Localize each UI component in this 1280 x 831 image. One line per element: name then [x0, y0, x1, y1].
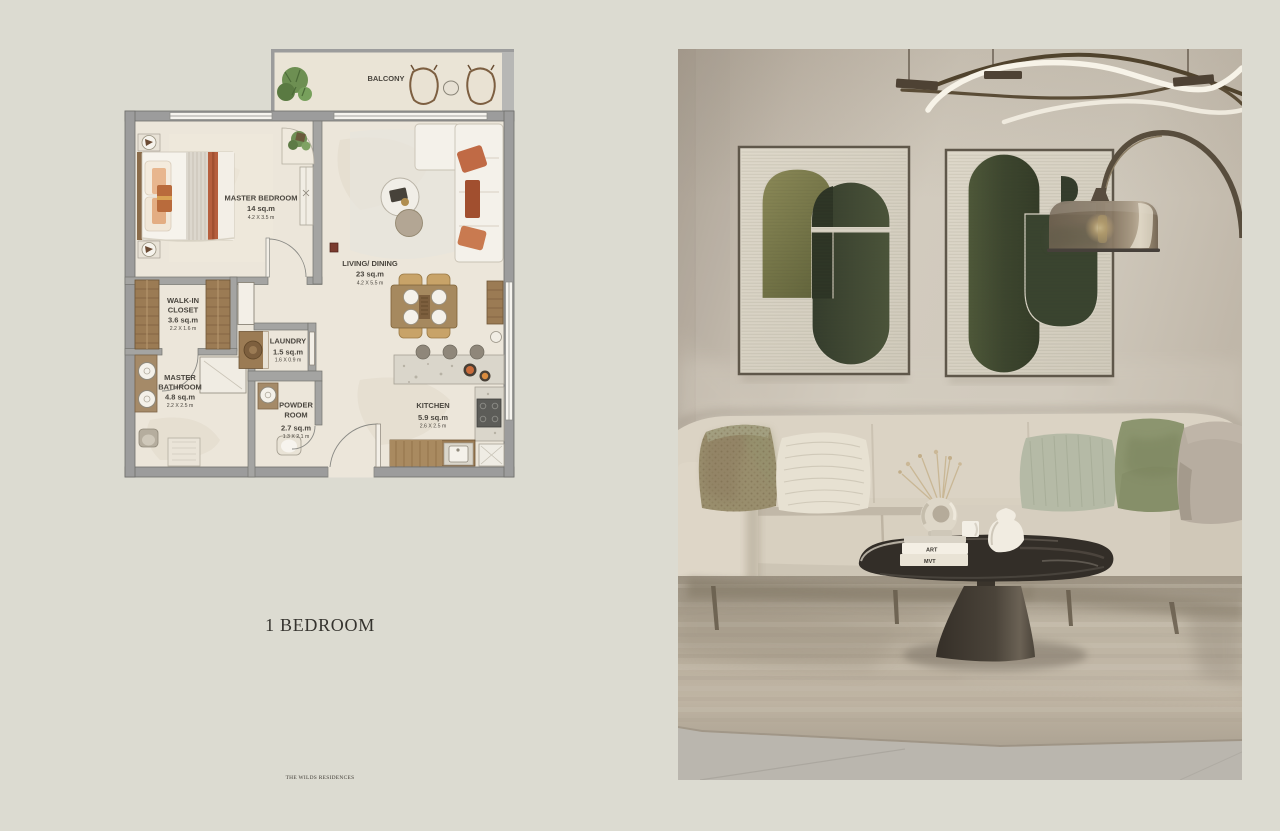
- svg-text:MVT: MVT: [924, 559, 936, 565]
- svg-text:3.6 sq.m: 3.6 sq.m: [168, 316, 198, 325]
- svg-text:LIVING/ DINING: LIVING/ DINING: [342, 259, 398, 268]
- svg-text:2.6 X 2.5 m: 2.6 X 2.5 m: [420, 424, 447, 430]
- svg-text:2.7 sq.m: 2.7 sq.m: [281, 424, 311, 433]
- svg-text:KITCHEN: KITCHEN: [416, 401, 449, 410]
- svg-text:4.2 X 5.5 m: 4.2 X 5.5 m: [357, 281, 384, 287]
- svg-text:2.2 X 2.5 m: 2.2 X 2.5 m: [167, 403, 194, 409]
- svg-text:5.9 sq.m: 5.9 sq.m: [418, 413, 448, 422]
- svg-text:23 sq.m: 23 sq.m: [356, 270, 384, 279]
- svg-text:LAUNDRY: LAUNDRY: [270, 337, 306, 346]
- svg-text:MASTER BEDROOM: MASTER BEDROOM: [225, 194, 298, 203]
- svg-text:ART: ART: [926, 548, 938, 554]
- svg-text:1.5 sq.m: 1.5 sq.m: [273, 348, 303, 357]
- svg-text:ROOM: ROOM: [284, 411, 307, 420]
- svg-text:THE WILDS RESIDENCES: THE WILDS RESIDENCES: [286, 775, 355, 781]
- svg-text:MASTER: MASTER: [164, 373, 196, 382]
- svg-text:14 sq.m: 14 sq.m: [247, 204, 275, 213]
- svg-text:4.8 sq.m: 4.8 sq.m: [165, 393, 195, 402]
- svg-text:1 BEDROOM: 1 BEDROOM: [265, 615, 375, 635]
- svg-text:4.2 X 3.5 m: 4.2 X 3.5 m: [248, 215, 275, 221]
- svg-text:1.3 X 2.1 m: 1.3 X 2.1 m: [283, 434, 310, 440]
- svg-text:BALCONY: BALCONY: [367, 74, 404, 83]
- svg-text:BATHROOM: BATHROOM: [158, 383, 202, 392]
- svg-text:CLOSET: CLOSET: [168, 306, 199, 315]
- svg-text:1.6 X 0.9 m: 1.6 X 0.9 m: [275, 358, 302, 364]
- svg-text:WALK-IN: WALK-IN: [167, 296, 199, 305]
- svg-text:POWDER: POWDER: [279, 401, 313, 410]
- svg-text:2.2 X 1.6 m: 2.2 X 1.6 m: [170, 326, 197, 332]
